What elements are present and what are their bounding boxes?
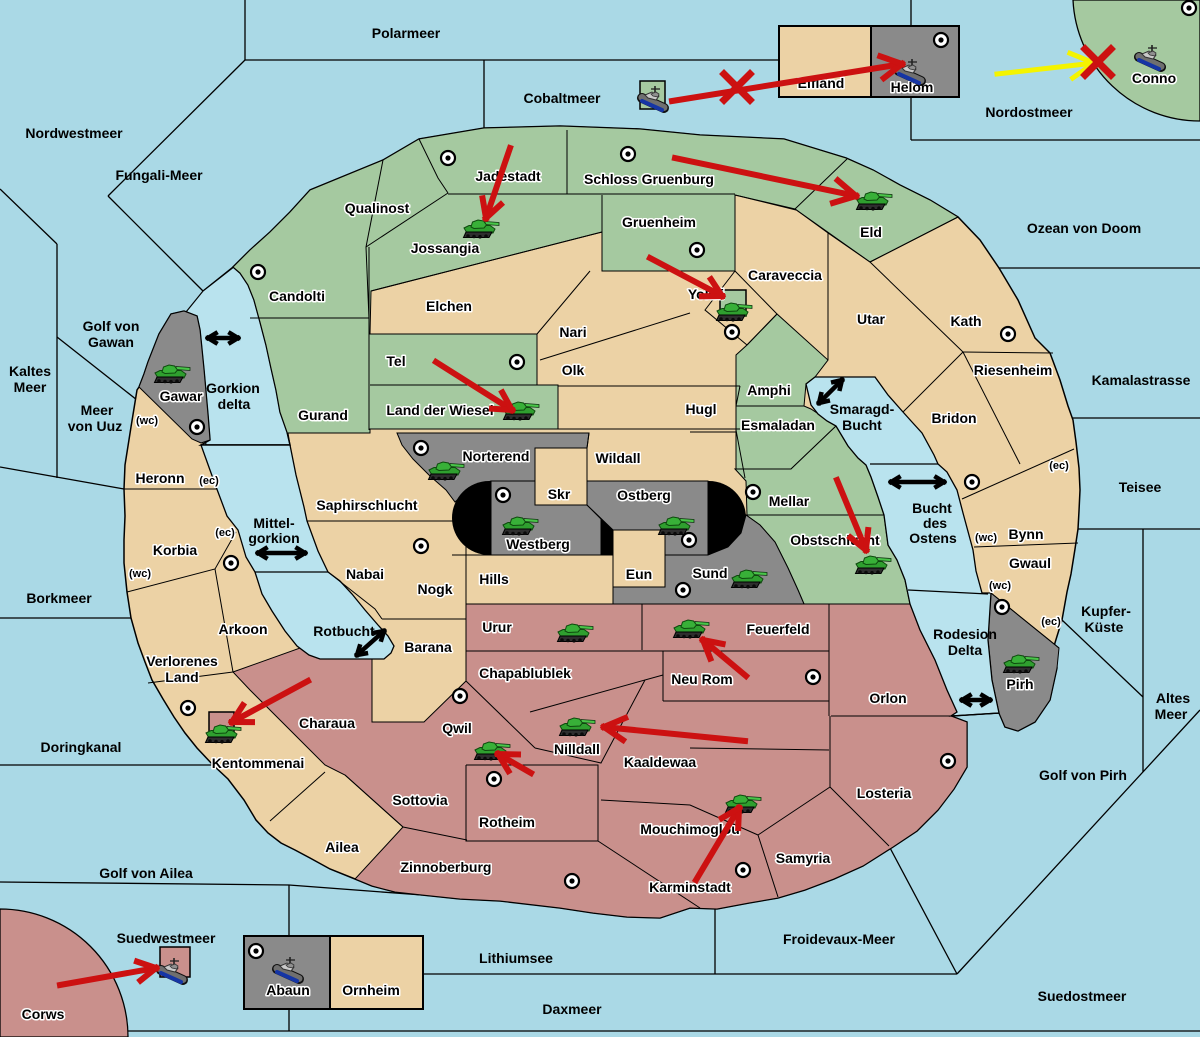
svg-text:Westberg: Westberg xyxy=(506,536,570,552)
svg-text:Losteria: Losteria xyxy=(857,785,912,801)
svg-text:Feuerfeld: Feuerfeld xyxy=(746,621,809,637)
svg-text:Nordostmeer: Nordostmeer xyxy=(985,104,1073,120)
svg-text:Jadestadt: Jadestadt xyxy=(475,168,541,184)
svg-text:Orlon: Orlon xyxy=(869,690,906,706)
svg-text:Meer: Meer xyxy=(81,402,114,418)
svg-text:Samyria: Samyria xyxy=(776,850,831,866)
svg-text:Mellar: Mellar xyxy=(769,493,810,509)
svg-text:Altes: Altes xyxy=(1156,690,1190,706)
svg-text:Golf von: Golf von xyxy=(83,318,140,334)
svg-text:des: des xyxy=(923,515,947,531)
svg-text:Land der Wiesel: Land der Wiesel xyxy=(386,402,493,418)
svg-text:Golf von Pirh: Golf von Pirh xyxy=(1039,767,1127,783)
svg-text:Skr: Skr xyxy=(548,486,571,502)
svg-text:Daxmeer: Daxmeer xyxy=(542,1001,602,1017)
svg-text:Kamalastrasse: Kamalastrasse xyxy=(1092,372,1191,388)
svg-text:Lithiumsee: Lithiumsee xyxy=(479,950,553,966)
svg-text:Arkoon: Arkoon xyxy=(219,621,268,637)
svg-text:Gawar: Gawar xyxy=(160,388,203,404)
svg-text:(wc): (wc) xyxy=(975,532,997,544)
svg-text:Polarmeer: Polarmeer xyxy=(372,25,441,41)
svg-text:Corws: Corws xyxy=(22,1006,65,1022)
svg-text:Gorkion: Gorkion xyxy=(206,380,260,396)
svg-text:Karminstadt: Karminstadt xyxy=(649,879,731,895)
svg-text:Neu Rom: Neu Rom xyxy=(671,671,732,687)
svg-text:Golf von Ailea: Golf von Ailea xyxy=(99,865,193,881)
svg-text:Pirh: Pirh xyxy=(1006,676,1033,692)
svg-text:Korbia: Korbia xyxy=(153,542,198,558)
svg-text:Nari: Nari xyxy=(559,324,586,340)
svg-text:Mittel-: Mittel- xyxy=(253,515,295,531)
svg-text:Elchen: Elchen xyxy=(426,298,472,314)
svg-text:Gurand: Gurand xyxy=(298,407,348,423)
svg-text:Delta: Delta xyxy=(948,642,982,658)
svg-text:Bucht: Bucht xyxy=(842,417,882,433)
svg-text:Saphirschlucht: Saphirschlucht xyxy=(316,497,417,513)
svg-text:Nabai: Nabai xyxy=(346,566,384,582)
svg-text:Riesenheim: Riesenheim xyxy=(974,362,1053,378)
svg-text:Olk: Olk xyxy=(562,362,585,378)
svg-text:Bridon: Bridon xyxy=(931,410,976,426)
svg-text:Gawan: Gawan xyxy=(88,334,134,350)
svg-text:Nogk: Nogk xyxy=(418,581,453,597)
svg-text:Ostens: Ostens xyxy=(909,530,957,546)
svg-text:gorkion: gorkion xyxy=(248,530,299,546)
svg-text:Doringkanal: Doringkanal xyxy=(41,739,122,755)
svg-text:(ec): (ec) xyxy=(1041,616,1061,628)
svg-text:Kupfer-: Kupfer- xyxy=(1081,603,1131,619)
svg-text:Heronn: Heronn xyxy=(136,470,185,486)
svg-text:Tel: Tel xyxy=(386,353,405,369)
svg-text:Ailea: Ailea xyxy=(325,839,359,855)
svg-text:Rotheim: Rotheim xyxy=(479,814,535,830)
svg-text:von Uuz: von Uuz xyxy=(68,418,122,434)
svg-text:Conno: Conno xyxy=(1132,70,1176,86)
svg-text:Candolti: Candolti xyxy=(269,288,325,304)
svg-text:Ostberg: Ostberg xyxy=(617,487,671,503)
svg-text:Kentommenai: Kentommenai xyxy=(212,755,305,771)
svg-text:Fungali-Meer: Fungali-Meer xyxy=(115,167,203,183)
svg-text:Utar: Utar xyxy=(857,311,886,327)
svg-text:Norterend: Norterend xyxy=(463,448,530,464)
svg-text:Esmaladan: Esmaladan xyxy=(741,417,815,433)
svg-text:Abaun: Abaun xyxy=(266,982,310,998)
svg-text:Zinnoberburg: Zinnoberburg xyxy=(401,859,492,875)
svg-text:Urur: Urur xyxy=(482,619,512,635)
svg-text:Bynn: Bynn xyxy=(1009,526,1044,542)
svg-text:Kath: Kath xyxy=(950,313,981,329)
svg-text:Hugl: Hugl xyxy=(685,401,716,417)
svg-text:Land: Land xyxy=(165,669,198,685)
svg-text:(wc): (wc) xyxy=(989,580,1011,592)
svg-text:(ec): (ec) xyxy=(1049,460,1069,472)
svg-text:Barana: Barana xyxy=(404,639,452,655)
svg-text:Gwaul: Gwaul xyxy=(1009,555,1051,571)
svg-text:Teisee: Teisee xyxy=(1119,479,1162,495)
svg-text:Chapablublek: Chapablublek xyxy=(479,665,571,681)
svg-text:Borkmeer: Borkmeer xyxy=(26,590,92,606)
svg-text:Hills: Hills xyxy=(479,571,509,587)
svg-text:Sund: Sund xyxy=(693,565,728,581)
svg-text:Gruenheim: Gruenheim xyxy=(622,214,696,230)
svg-text:Eun: Eun xyxy=(626,566,652,582)
svg-text:(ec): (ec) xyxy=(199,475,219,487)
svg-text:Nilldall: Nilldall xyxy=(554,741,600,757)
svg-text:(wc): (wc) xyxy=(136,415,158,427)
svg-text:(ec): (ec) xyxy=(215,527,235,539)
svg-text:Wildall: Wildall xyxy=(596,450,641,466)
svg-text:Suedwestmeer: Suedwestmeer xyxy=(117,930,216,946)
svg-text:Kaaldewaa: Kaaldewaa xyxy=(624,754,697,770)
svg-text:Ornheim: Ornheim xyxy=(342,982,400,998)
svg-text:Nordwestmeer: Nordwestmeer xyxy=(25,125,123,141)
svg-text:Kaltes: Kaltes xyxy=(9,363,51,379)
svg-text:Amphi: Amphi xyxy=(747,382,791,398)
svg-text:Qualinost: Qualinost xyxy=(345,200,410,216)
svg-text:Bucht: Bucht xyxy=(912,500,952,516)
svg-text:Meer: Meer xyxy=(1155,706,1188,722)
svg-text:Rodesion: Rodesion xyxy=(933,626,997,642)
svg-text:Küste: Küste xyxy=(1085,619,1124,635)
svg-text:(wc): (wc) xyxy=(129,568,151,580)
svg-text:Charaua: Charaua xyxy=(299,715,355,731)
svg-text:Froidevaux-Meer: Froidevaux-Meer xyxy=(783,931,896,947)
svg-text:Smaragd-: Smaragd- xyxy=(830,401,895,417)
svg-text:Schloss Gruenburg: Schloss Gruenburg xyxy=(584,171,714,187)
svg-text:delta: delta xyxy=(218,396,251,412)
svg-text:Ozean von Doom: Ozean von Doom xyxy=(1027,220,1141,236)
svg-text:Suedostmeer: Suedostmeer xyxy=(1038,988,1127,1004)
svg-text:Rotbucht: Rotbucht xyxy=(313,623,375,639)
svg-text:Caraveccia: Caraveccia xyxy=(748,267,822,283)
svg-text:Verlorenes: Verlorenes xyxy=(146,653,218,669)
svg-text:Jossangia: Jossangia xyxy=(411,240,480,256)
svg-text:Sottovia: Sottovia xyxy=(392,792,447,808)
svg-text:Qwil: Qwil xyxy=(442,720,472,736)
svg-text:Eld: Eld xyxy=(860,224,882,240)
svg-text:Cobaltmeer: Cobaltmeer xyxy=(523,90,601,106)
svg-text:Meer: Meer xyxy=(14,379,47,395)
